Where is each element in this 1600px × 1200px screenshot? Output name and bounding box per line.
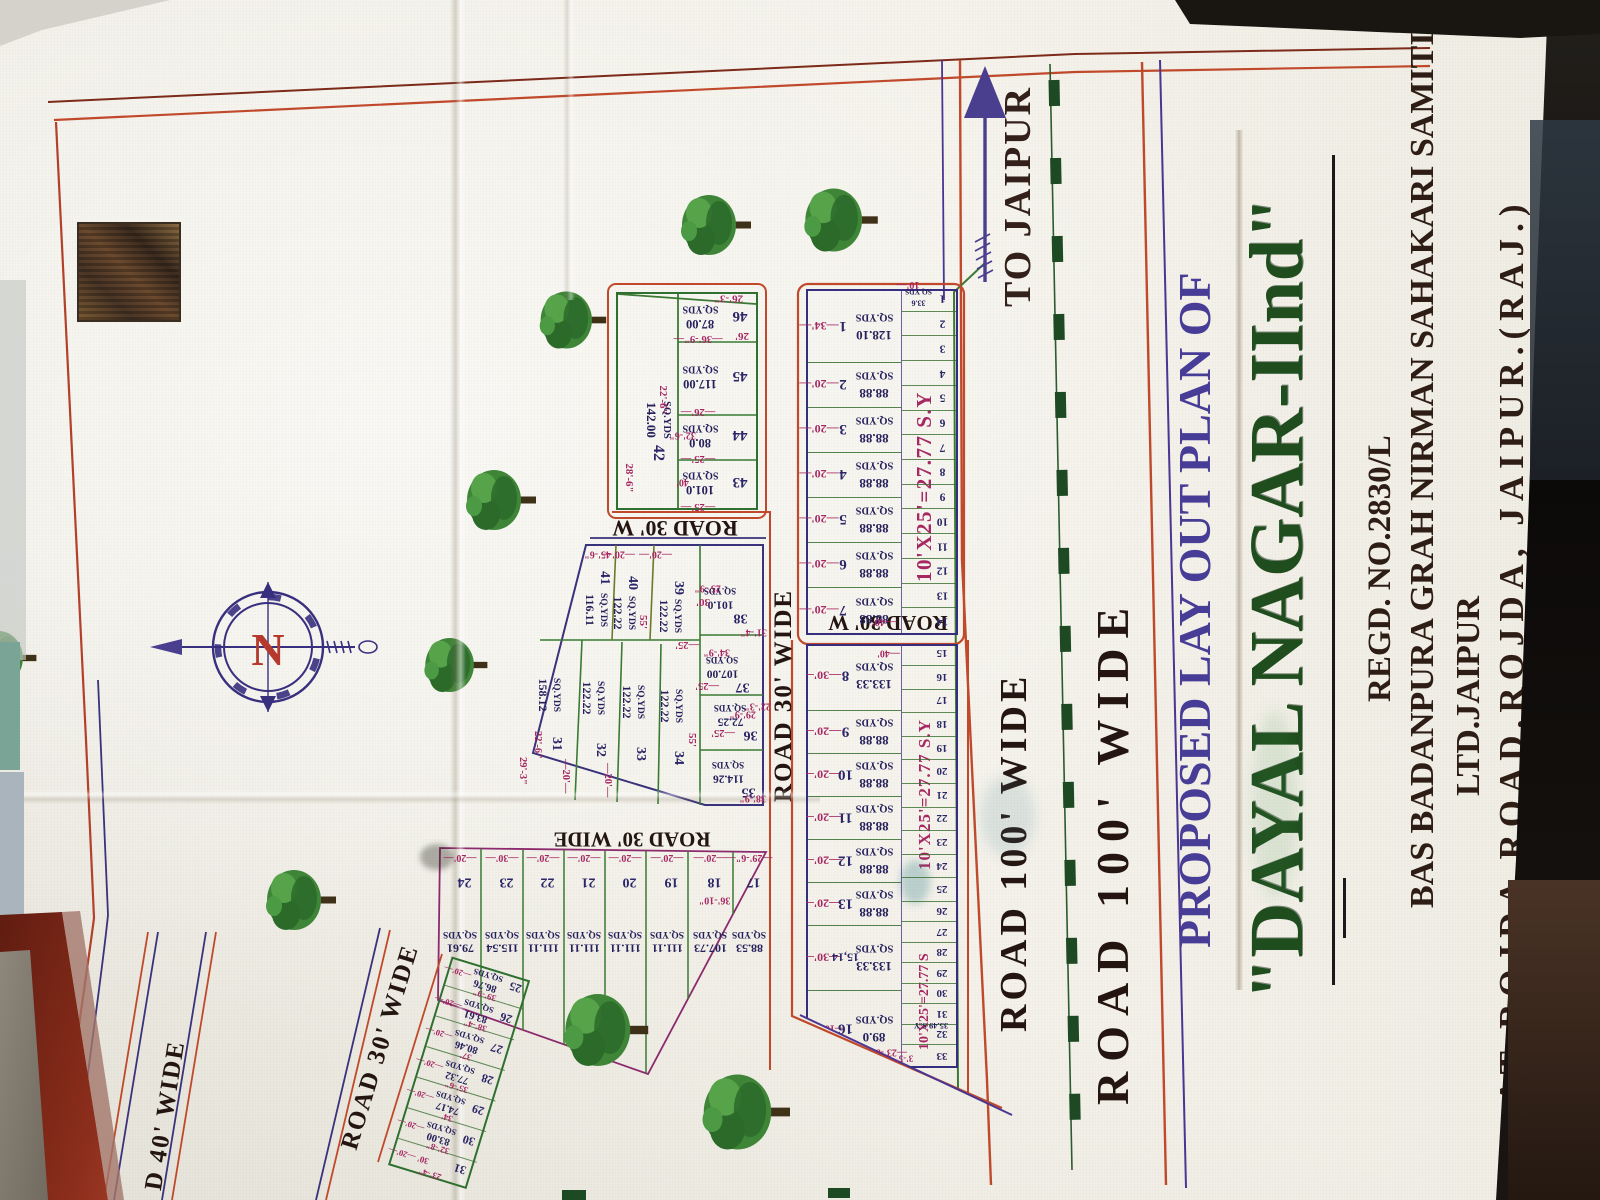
compass-north-letter: N xyxy=(246,623,290,671)
small-plot-number: 8 xyxy=(932,465,952,478)
plot-area: 133.33 xyxy=(848,960,900,974)
plot-area-unit: SQ.YDS xyxy=(724,929,774,939)
small-plot-cell: 13 xyxy=(902,584,956,609)
plot-area-unit: SQ.YDS xyxy=(846,803,902,814)
plot-area: 88.88 xyxy=(848,522,900,536)
plot-dim: —26'— xyxy=(677,405,719,417)
small-plot-cell: 29 xyxy=(902,964,956,985)
plot-number: 28 xyxy=(477,1071,498,1088)
plot-dim: —20'— xyxy=(440,851,480,863)
small-plot-number: 31 xyxy=(932,1008,952,1020)
plot-area: 115.54 xyxy=(479,942,525,955)
plot-area: 88.88 xyxy=(848,906,900,920)
plot-cell: —20'—1188.88SQ.YDS xyxy=(808,797,902,840)
plot-area: 111.11 xyxy=(520,942,566,955)
road-100-lower-label: ROAD 100' WIDE xyxy=(1086,598,1139,1105)
layout-plan-sheet: PROPOSED LAY OUT PLAN OF "DAYAL NAGAR-II… xyxy=(0,0,1600,1200)
small-plot-number: 10 xyxy=(932,514,952,527)
small-plot-cell: 22 xyxy=(902,808,956,832)
plot-area: 111.11 xyxy=(644,942,690,955)
small-plot-cell: 15 xyxy=(902,642,956,666)
background-left-teal xyxy=(0,642,20,770)
plot-number: 18 xyxy=(701,875,727,890)
plot-number: 36 xyxy=(739,728,761,743)
plot-number: 17 xyxy=(740,875,766,890)
plot-area-unit: SQ.YDS xyxy=(846,550,902,561)
plot-area-unit: SQ.YDS xyxy=(846,717,902,728)
plot-dim: —25' xyxy=(710,726,736,738)
plot-dim: —25'— xyxy=(677,500,719,512)
plot-dim: —20'— xyxy=(559,759,571,793)
small-plot-number: 12 xyxy=(932,564,952,577)
strip-block-1: —20'—788.88SQ.YDS—20'—688.88SQ.YDS—20'—5… xyxy=(806,289,958,635)
small-plot-number: 20 xyxy=(932,765,952,777)
plot-number: 34 xyxy=(670,746,686,770)
small-plot-number: 4 xyxy=(932,366,952,379)
plot-area-unit: SQ.YDS xyxy=(704,760,752,770)
plot-dim: 36'-10" xyxy=(689,895,739,906)
plot-area: 88.88 xyxy=(848,820,900,834)
plot-number: 26 xyxy=(496,1010,517,1027)
small-plot-cell: 24 xyxy=(902,855,956,879)
small-plot-cell: 5 xyxy=(902,386,956,411)
plot-number: 46 xyxy=(727,308,753,324)
plot-area: SQ.YDS122.22 xyxy=(618,668,646,736)
plot-number: 24 xyxy=(451,875,477,890)
plot-area: 88.88 xyxy=(848,567,900,581)
plot-dim: —20'— xyxy=(602,549,634,560)
plot-dim: —40' xyxy=(869,616,899,628)
plot-cell: —20'—588.88SQ.YDS xyxy=(808,498,902,543)
plot-dim: 29'-3" xyxy=(516,748,528,794)
plot-cell: —20'—388.88SQ.YDS xyxy=(808,408,902,453)
plot-cell: —20'—988.88SQ.YDS xyxy=(808,711,902,754)
tip-area-label: 35.49 S.Y xyxy=(914,1021,948,1031)
small-plot-cell: 18 xyxy=(902,713,956,737)
society-name-2: LTD.JAIPUR xyxy=(1450,596,1488,796)
small-plot-cell: 17 xyxy=(902,690,956,714)
small-plot-number: 24 xyxy=(932,860,952,872)
plot-number: 25 xyxy=(505,979,526,996)
background-left-grey xyxy=(0,280,26,660)
plot-number: 20 xyxy=(616,875,642,890)
plot-area: 87.00 xyxy=(675,317,725,331)
strip-block-2: —16'-5"—1689.0SQ.YDS—23'-8"—30'—15,14133… xyxy=(806,644,958,1068)
background-right-brown xyxy=(1508,880,1600,1200)
small-plot-cell: 30 xyxy=(902,984,956,1005)
plan-title: "DAYAL NAGAR-IInd" xyxy=(1234,197,1321,1000)
plot-dim: —20'— xyxy=(523,851,563,863)
plot-dim: 28'-6" xyxy=(622,453,635,503)
plot-area: 79.61 xyxy=(437,942,483,955)
plot-area: 107.00 xyxy=(700,667,744,680)
plot-area-unit: SQ.YDS xyxy=(846,460,902,471)
road-30-wide-label: ROAD 30' WIDE xyxy=(770,589,798,802)
small-plot-number: 17 xyxy=(932,694,952,706)
small-plot-cell: 9 xyxy=(902,485,956,510)
plot-area: 88.88 xyxy=(848,387,900,401)
title-underline-2 xyxy=(1343,878,1346,938)
plan-linework xyxy=(0,0,1600,1200)
plot-area: 133.33 xyxy=(848,678,900,692)
plot-cell: —30'—8133.33SQ.YDS—40' xyxy=(808,642,902,711)
small-plot-cell: 21 xyxy=(902,784,956,808)
plot-area: SQ.YDS122.22 xyxy=(656,672,684,740)
small-plot-number: 6 xyxy=(932,415,952,428)
plot-dim: —30'— xyxy=(482,851,522,863)
plot-cell: —20'—1088.88SQ.YDS xyxy=(808,754,902,797)
plot-dim: 38'-9" xyxy=(730,793,774,804)
small-plot-number: 22 xyxy=(932,812,952,824)
plot-dim: —20'— xyxy=(647,851,687,863)
plot-area: 111.11 xyxy=(561,942,607,955)
plot-number: 38 xyxy=(729,611,751,626)
small-plot-cell: 12 xyxy=(902,559,956,584)
road-30-wide-vertical-label: ROAD 30' WIDE xyxy=(540,825,725,855)
plot-dim: 30' xyxy=(690,596,716,608)
small-plot-cell: 133.6SQ.YDS xyxy=(902,287,956,312)
plan-subtitle: PROPOSED LAY OUT PLAN OF xyxy=(1168,272,1221,948)
small-plot-cell: 2 xyxy=(902,312,956,337)
plot-area-unit: SQ.YDS xyxy=(846,596,902,607)
plot-area-unit: SQ.YDS xyxy=(846,760,902,771)
title-underline xyxy=(1332,155,1335,985)
plot-dim: 32'-6" xyxy=(667,430,697,441)
small-plot-number: 27 xyxy=(932,926,952,938)
plot-dim: 40' xyxy=(667,477,697,488)
small-plot-cell: 25 xyxy=(902,878,956,902)
plot-area: 117.00 xyxy=(675,378,725,392)
plot-dim: 26' xyxy=(728,330,756,342)
plot-dim: —29'-6"— xyxy=(729,851,769,863)
plot-dim: —25' xyxy=(694,679,720,691)
small-plot-cell: 8 xyxy=(902,460,956,485)
plot-area: 88.88 xyxy=(848,477,900,491)
plot-number: 32 xyxy=(592,738,608,762)
small-plot-number: 9 xyxy=(932,490,952,503)
plot-number: 29 xyxy=(468,1102,489,1119)
plot-area-unit: SQ.YDS xyxy=(846,1014,902,1025)
small-plot-number: 16 xyxy=(932,671,952,683)
to-jaipur-label: TO JAIPUR xyxy=(996,86,1040,307)
small-plot-number: 3 xyxy=(932,341,952,354)
plot-area: 88.88 xyxy=(848,777,900,791)
plot-cell: —20'—288.88SQ.YDS xyxy=(808,363,902,408)
plot-cell: —20'—1288.88SQ.YDS xyxy=(808,840,902,883)
plot-number: 43 xyxy=(727,474,753,490)
plot-number: 31 xyxy=(548,732,564,756)
small-plot-cell: 11 xyxy=(902,534,956,559)
small-plot-number: 11 xyxy=(932,539,952,552)
small-plot-cell: 14 xyxy=(902,608,956,633)
plot-dim: —20'— xyxy=(601,763,613,797)
plot-area-unit: SQ.YDS xyxy=(846,943,902,954)
small-plot-number: 7 xyxy=(932,440,952,453)
regd-number: REGD. NO.2830/L xyxy=(1362,435,1399,702)
small-plot-cell: 10 xyxy=(902,509,956,534)
small-plot-cell: 6 xyxy=(902,411,956,436)
plot-number: 45 xyxy=(727,369,753,385)
plot-dim: 26'-3" xyxy=(703,292,753,305)
small-plot-number: 18 xyxy=(932,718,952,730)
plot-number: 30 xyxy=(458,1132,479,1149)
small-plot-cell: 7 xyxy=(902,435,956,460)
plot-area-unit: SQ.YDS xyxy=(673,364,727,375)
plot-dim: 10'— xyxy=(895,278,921,290)
plot-area-unit: SQ.YDS xyxy=(673,304,727,315)
plot-number: 27 xyxy=(486,1040,507,1057)
plot-number: 19 xyxy=(658,875,684,890)
small-plot-number: 15 xyxy=(932,647,952,659)
small-plot-number: 29 xyxy=(932,967,952,979)
plot-dim: 22'-6" xyxy=(531,722,543,768)
plot-dim: 22'-6" xyxy=(656,375,669,425)
small-plot-number: 5 xyxy=(932,391,952,404)
pasted-photo-stamp xyxy=(77,222,181,322)
plot-number: 22 xyxy=(534,875,560,890)
small-plot-cell: 20 xyxy=(902,760,956,784)
small-plot-cell: 3 xyxy=(902,336,956,361)
tip-dim-label: 3'-5" xyxy=(888,1053,918,1064)
background-right-blue xyxy=(1530,120,1600,480)
small-plot-number: 19 xyxy=(932,742,952,754)
small-plot-number: 25 xyxy=(932,883,952,895)
road-100-upper-label: ROAD 100' WIDE xyxy=(992,673,1036,1032)
plot-area: SQ.YDS116.11 xyxy=(581,576,609,644)
plot-area-unit: SQ.YDS xyxy=(846,505,902,516)
plot-dim: —20'— xyxy=(690,851,730,863)
plot-area-unit: SQ.YDS xyxy=(846,889,902,900)
plot-dim: 22'-3" xyxy=(735,701,779,712)
plot-area-unit: SQ.YDS xyxy=(846,370,902,381)
plot-dim: —36'-9"— xyxy=(677,332,719,344)
plot-area: SQ.YDS122.22 xyxy=(609,579,637,647)
plot-cell: —20'—1388.88SQ.YDS xyxy=(808,883,902,926)
plot-cell: —20'—488.88SQ.YDS xyxy=(808,453,902,498)
plot-number: 21 xyxy=(575,875,601,890)
plot-number: 23 xyxy=(493,875,519,890)
plot-area-unit: SQ.YDS xyxy=(846,846,902,857)
plot-dim: 34'-9" xyxy=(693,647,739,658)
society-name: BAS BADANPURA GRAH NIRMAN SAHAKARI SAMIT… xyxy=(1404,32,1442,908)
plot-dim: —40' xyxy=(871,648,905,659)
plot-dim: —20'— xyxy=(564,851,604,863)
plot-area: 88.88 xyxy=(848,432,900,446)
photographed-layout-plan: PROPOSED LAY OUT PLAN OF "DAYAL NAGAR-II… xyxy=(0,0,1600,1200)
cluster-a: 42SQ.YDS142.0028'-6"22'-6"101.0SQ.YDS43—… xyxy=(616,292,758,510)
plot-number: 33 xyxy=(632,742,648,766)
plot-dim: 31'-4" xyxy=(731,627,775,638)
plot-area: SQ.YDS158.12 xyxy=(534,661,562,729)
small-plot-number: 33 xyxy=(932,1050,952,1062)
small-plot-cell: 16 xyxy=(902,666,956,690)
plot-area: 114.26 xyxy=(706,772,750,785)
plot-area-unit: SQ.YDS xyxy=(846,312,902,323)
small-plot-number: 2 xyxy=(932,317,952,330)
plot-area-unit: SQ.YDS xyxy=(846,415,902,426)
small-plot-area: 33.6 xyxy=(903,299,933,308)
small-plot-cell: 23 xyxy=(902,831,956,855)
plot-dim: —25'— xyxy=(677,452,719,464)
small-plot-number: 21 xyxy=(932,789,952,801)
plot-dim: 55' xyxy=(686,727,698,753)
small-plot-number: 28 xyxy=(932,946,952,958)
plot-dim: 25'-9" xyxy=(685,583,729,594)
plot-area: 88.88 xyxy=(848,863,900,877)
plot-cell: —30'—15,14133.33SQ.YDS xyxy=(808,926,902,991)
small-plot-number: 30 xyxy=(932,987,952,999)
plot-area-unit: SQ.YDS xyxy=(846,661,902,672)
small-plot-number: 26 xyxy=(932,905,952,917)
plot-number: 37 xyxy=(731,680,753,695)
plot-cell: —20'—688.88SQ.YDS xyxy=(808,543,902,588)
small-plot-cell: 27 xyxy=(902,923,956,944)
plot-area: 111.11 xyxy=(602,942,648,955)
plot-area: 88.88 xyxy=(848,734,900,748)
small-plot-number: 14 xyxy=(932,614,952,627)
plot-area: SQ.YDS122.22 xyxy=(578,664,606,732)
plot-dim: —20'— xyxy=(639,549,671,560)
small-plot-number: 13 xyxy=(932,588,952,601)
small-plot-cell: 19 xyxy=(902,737,956,761)
plot-cell: —34'—1128.10SQ.YDS xyxy=(808,291,902,363)
plot-area: 88.53 xyxy=(726,942,772,955)
plot-dim: 55' xyxy=(637,609,649,635)
small-plot-cell: 26 xyxy=(902,902,956,923)
road-30-w-label-a: ROAD 30' W xyxy=(595,513,755,543)
plot-dim: —20'— xyxy=(605,851,645,863)
plot-area: 128.10 xyxy=(848,328,900,342)
small-plot-cell: 4 xyxy=(902,361,956,386)
small-plot-number: 23 xyxy=(932,836,952,848)
background-left-blue xyxy=(0,772,24,937)
small-plot-cell: 28 xyxy=(902,943,956,964)
plot-number: 44 xyxy=(727,428,753,444)
